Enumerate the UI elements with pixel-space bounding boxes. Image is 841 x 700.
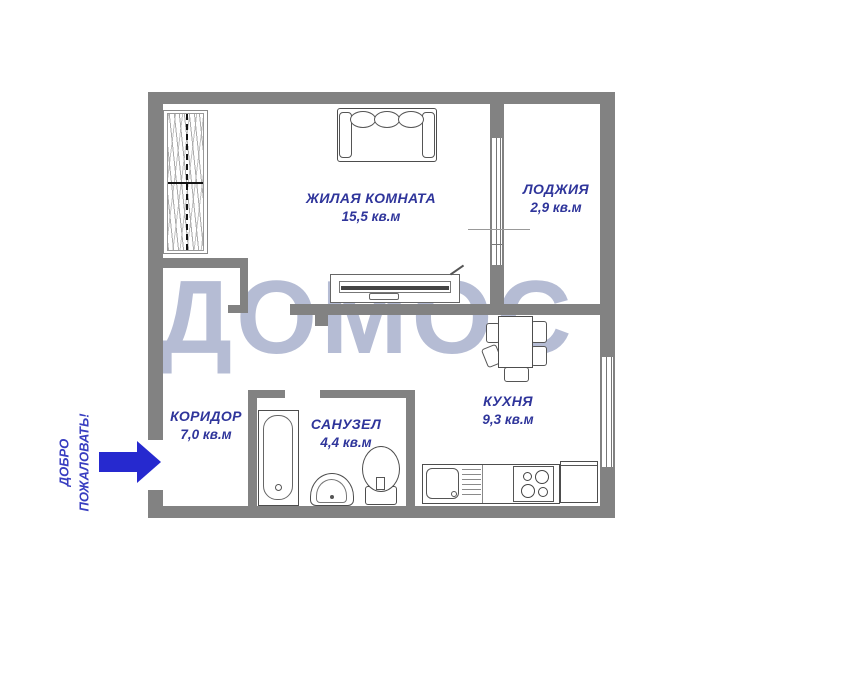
- tv-screen: [341, 286, 449, 290]
- window-mullion: [496, 138, 497, 265]
- window-crossbar: [492, 244, 502, 245]
- bathroom-label: САНУЗЕЛ 4,4 кв.м: [291, 416, 401, 450]
- window-mullion: [611, 357, 612, 467]
- loggia-label: ЛОДЖИЯ 2,9 кв.м: [501, 181, 611, 215]
- wall-loggia-partition-top: [490, 104, 504, 138]
- washbasin-drain: [330, 495, 334, 499]
- window-mullion: [606, 357, 607, 467]
- room-area: 7,0 кв.м: [151, 427, 261, 442]
- dining-table: [498, 316, 533, 368]
- wall-pillar: [315, 315, 328, 326]
- tv-stand: [330, 274, 460, 303]
- room-name: КОРИДОР: [151, 408, 261, 424]
- room-name: КУХНЯ: [453, 393, 563, 409]
- toilet: [362, 446, 400, 492]
- kitchen-label: КУХНЯ 9,3 кв.м: [453, 393, 563, 427]
- wardrobe-hangers: [167, 113, 204, 251]
- welcome-line-2: ПОЖАЛОВАТЬ!: [74, 413, 94, 511]
- floor-plan: ДОМОС: [0, 0, 841, 700]
- welcome-text: ДОБРО ПОЖАЛОВАТЬ!: [55, 413, 94, 511]
- bathtub-basin: [263, 415, 293, 500]
- wall-left-upper: [148, 92, 163, 440]
- wall-bathroom-right: [406, 390, 415, 506]
- stove-burner: [523, 472, 532, 481]
- stove-burner: [535, 470, 549, 484]
- bathtub-drain: [275, 484, 282, 491]
- corridor-label: КОРИДОР 7,0 кв.м: [151, 408, 261, 442]
- wall-doorjamb: [228, 305, 248, 313]
- sofa: [337, 108, 437, 162]
- balcony-door-line: [468, 229, 530, 230]
- washbasin-bowl: [316, 479, 347, 503]
- counter-divider: [482, 465, 483, 503]
- wall-bottom: [148, 506, 615, 518]
- wardrobe-shelf: [168, 182, 203, 184]
- room-name: ЖИЛАЯ КОМНАТА: [281, 190, 461, 206]
- entrance-arrow-icon: [99, 452, 137, 472]
- toilet-flush: [376, 477, 385, 490]
- wall-bathroom-top-left: [257, 390, 285, 398]
- welcome-line-1: ДОБРО: [55, 413, 75, 511]
- kitchen-counter: [422, 464, 560, 504]
- room-area: 4,4 кв.м: [291, 435, 401, 450]
- kitchen-sink-faucet: [451, 491, 457, 497]
- sofa-cushion: [350, 111, 376, 128]
- chair: [531, 321, 547, 343]
- stove-burner: [538, 487, 548, 497]
- kitchen-sink: [426, 468, 459, 499]
- chair: [531, 346, 547, 366]
- room-area: 2,9 кв.м: [501, 200, 611, 215]
- room-area: 9,3 кв.м: [453, 412, 563, 427]
- room-area: 15,5 кв.м: [281, 209, 461, 224]
- sofa-cushion: [398, 111, 424, 128]
- washbasin: [310, 473, 354, 506]
- wall-top: [148, 92, 615, 104]
- room-name: САНУЗЕЛ: [291, 416, 401, 432]
- kitchen-window-icon: [600, 357, 615, 467]
- wall-right-upper: [600, 92, 615, 357]
- stove-burner: [521, 484, 535, 498]
- entrance-arrow-head-icon: [137, 441, 161, 483]
- wall-right-lower: [600, 467, 615, 518]
- wall-mid: [290, 304, 615, 315]
- wardrobe: [163, 110, 208, 254]
- fridge: [560, 461, 598, 503]
- room-name: ЛОДЖИЯ: [501, 181, 611, 197]
- living-room-label: ЖИЛАЯ КОМНАТА 15,5 кв.м: [281, 190, 461, 224]
- drainboard: [462, 469, 481, 499]
- sofa-cushion: [374, 111, 400, 128]
- wall-bathroom-top-right: [320, 390, 406, 398]
- chair: [504, 367, 529, 382]
- wall-loggia-partition-bottom: [490, 265, 504, 304]
- wall-corridor-top: [163, 258, 248, 268]
- stove: [513, 466, 554, 502]
- fridge-line: [561, 465, 597, 466]
- tv-base: [369, 293, 399, 300]
